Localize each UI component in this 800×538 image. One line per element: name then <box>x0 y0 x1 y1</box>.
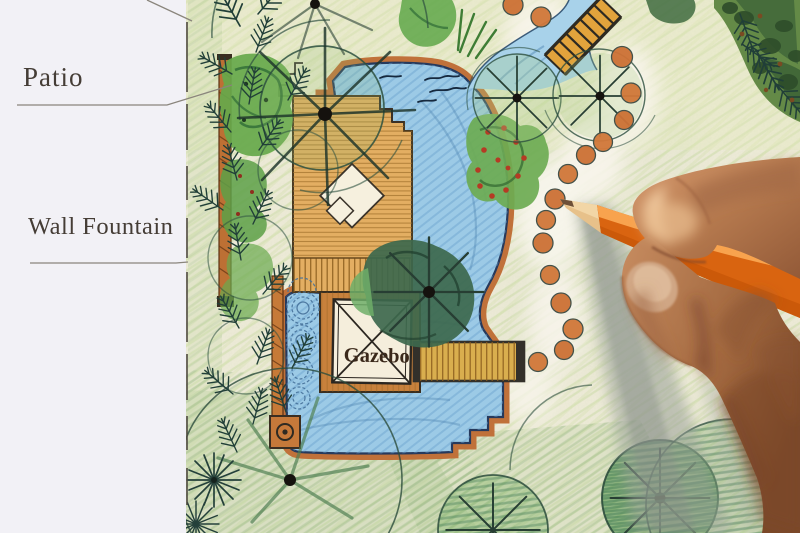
svg-text:Gazebo: Gazebo <box>344 345 410 368</box>
svg-text:Wall Fountain: Wall Fountain <box>28 213 173 240</box>
svg-text:Patio: Patio <box>23 62 84 92</box>
